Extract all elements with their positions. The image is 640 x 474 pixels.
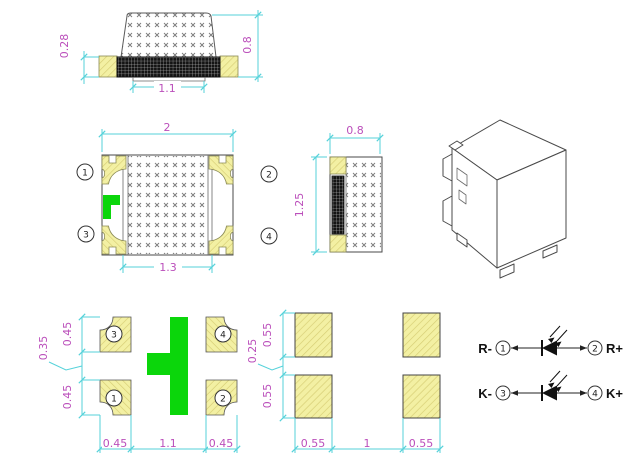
pin-4-number: 4: [266, 233, 272, 243]
terminal-label-k-minus: K-: [478, 386, 492, 401]
section-mold: [346, 158, 381, 251]
footprint-pin-3: 3: [111, 331, 117, 341]
drawing-canvas: 0.28 0.8 1.1 1 2: [0, 0, 640, 474]
dim-pad-height: 0.28: [58, 34, 99, 84]
led-symbol: [542, 371, 567, 401]
stencil-pad-bl: [295, 375, 332, 418]
footprint-left-dims: 0.45 0.35 0.45: [37, 314, 100, 418]
side-left-pad: [99, 56, 117, 77]
schematic-row-1: R- 1 2 R+: [478, 326, 623, 356]
dim-label-pad-a-bl: 0.45: [103, 437, 128, 450]
dim-label-stencil-bl: 0.55: [301, 437, 326, 450]
wire-arrow-right: [580, 345, 587, 351]
terminal-label-r-minus: R-: [478, 341, 492, 356]
dim-label-pad-a-gap: 0.35: [37, 336, 50, 361]
wire-arrow-right: [580, 390, 587, 396]
section-pad-top: [330, 157, 346, 174]
side-view: 0.28 0.8 1.1: [58, 10, 263, 95]
lens-dome: [121, 13, 216, 57]
schematic-pin-3: 3: [500, 390, 506, 400]
chip-step: [133, 77, 205, 81]
dim-section-width: 0.8: [327, 124, 383, 154]
schematic-row-2: K- 3 4 K+: [478, 371, 623, 401]
dim-label-stencil-gap: 0.25: [246, 339, 259, 364]
schematic-pin-4: 4: [592, 390, 598, 400]
dim-label-chip-width: 1.1: [158, 82, 176, 95]
led-package-drawing: 0.28 0.8 1.1 1 2: [0, 0, 640, 474]
circuit-schematic: R- 1 2 R+ K- 3: [478, 326, 623, 401]
terminal-label-k-plus: K+: [606, 386, 623, 401]
wire-arrow-left: [511, 345, 518, 351]
dim-label-section-height: 1.25: [293, 193, 306, 218]
stencil-pad-br: [403, 375, 440, 418]
dim-mold-width: 1.3: [120, 255, 215, 274]
section-view: 0.8 1.25: [293, 124, 383, 255]
stencil-pad-tl: [295, 313, 332, 357]
top-view: 1 2 3 4 2 1.3: [77, 121, 277, 274]
stencil-bottom-dims: 0.55 1 0.55: [292, 418, 443, 453]
side-right-pad: [220, 56, 238, 77]
footprint-pin-4: 4: [220, 331, 226, 341]
dim-label-pad-a-bottom: 0.45: [61, 385, 74, 410]
wire-arrow-left: [511, 390, 518, 396]
emission-arrow-1: [548, 338, 555, 344]
footprint-pin-1: 1: [111, 395, 117, 405]
mold-area: [128, 156, 208, 254]
schematic-pin-1: 1: [500, 345, 506, 355]
stencil-layout: 0.55 0.25 0.55 0.55 1 0.55: [246, 310, 443, 453]
terminal-label-r-plus: R+: [606, 341, 623, 356]
dim-label-stencil-bottom: 0.55: [261, 384, 274, 409]
dim-label-stencil-br: 0.55: [409, 437, 434, 450]
dim-label-mold-width: 1.3: [159, 261, 177, 274]
dim-label-pad-height: 0.28: [58, 34, 71, 59]
dim-label-section-width: 0.8: [346, 124, 364, 137]
emission-arrow-1: [548, 383, 555, 389]
stencil-pad-tr: [403, 313, 440, 357]
dim-label-stencil-bc: 1: [364, 437, 371, 450]
dim-label-pad-a-bc: 1.1: [159, 437, 177, 450]
dim-chip-width: 1.1: [130, 81, 207, 95]
footprint-polarity-mark: [147, 317, 188, 415]
dim-label-total-height: 0.8: [241, 36, 254, 54]
dim-label-stencil-top: 0.55: [261, 323, 274, 348]
iso-pad-upper: [443, 154, 452, 181]
dim-body-width: 2: [99, 121, 236, 152]
footprint-pin-2: 2: [220, 395, 226, 405]
stencil-left-dims: 0.55 0.25 0.55: [246, 310, 295, 421]
electrode-bar: [117, 57, 220, 77]
iso-pad-lower: [443, 196, 452, 226]
pad-layout-footprint: 3 4 1 2 0.45 0.35 0.45: [37, 314, 240, 453]
section-pad-bottom: [330, 235, 346, 252]
dim-label-pad-a-top: 0.45: [61, 322, 74, 347]
schematic-pin-2: 2: [592, 345, 598, 355]
dim-section-height: 1.25: [293, 154, 327, 255]
led-symbol: [542, 326, 567, 356]
section-electrode: [332, 176, 344, 234]
dim-label-body-width: 2: [164, 121, 171, 134]
dim-label-pad-a-br: 0.45: [209, 437, 234, 450]
pin-1-number: 1: [82, 169, 88, 179]
footprint-bottom-dims: 0.45 1.1 0.45: [97, 415, 240, 453]
pin-2-number: 2: [266, 171, 272, 181]
isometric-view: [443, 120, 566, 278]
pin-3-number: 3: [83, 231, 89, 241]
